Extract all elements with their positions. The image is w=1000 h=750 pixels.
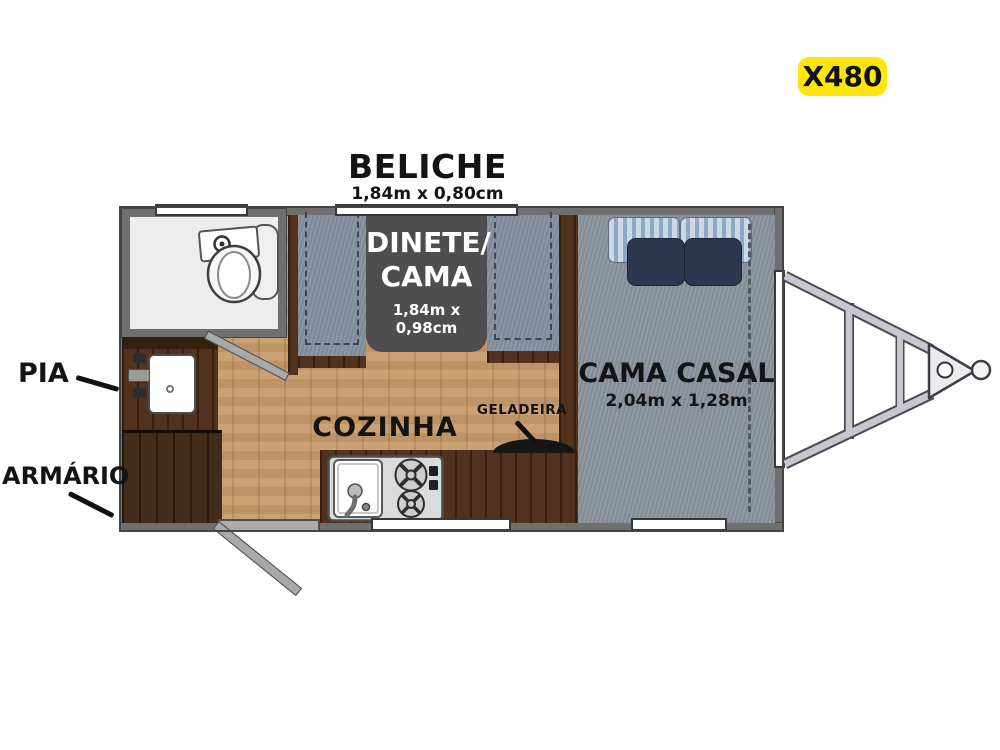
page-title: BELICHE bbox=[300, 147, 555, 186]
pillow-navy-left bbox=[627, 238, 685, 286]
cabinet-leader-line bbox=[68, 491, 115, 518]
faucet-icon bbox=[128, 369, 150, 382]
window-kitchen bbox=[371, 518, 511, 531]
burner-large-icon bbox=[396, 460, 427, 491]
dinette-bench-right-base bbox=[487, 351, 559, 363]
dinette-bench-right bbox=[487, 215, 559, 356]
bench-cushion-outline bbox=[305, 212, 359, 345]
double-bed-label: CAMA CASAL bbox=[578, 358, 775, 389]
page-title-dimensions: 1,84m x 0,80cm bbox=[300, 184, 555, 204]
cabinet-label: ARMÁRIO bbox=[2, 462, 129, 490]
faucet-knob-top bbox=[133, 353, 146, 363]
toilet-icon bbox=[194, 219, 286, 311]
bench-cushion-outline bbox=[494, 212, 552, 340]
dinette-side-panel-left bbox=[288, 215, 298, 375]
dinette-label-line2: CAMA bbox=[366, 260, 487, 294]
stove-sink-unit-icon bbox=[327, 455, 444, 522]
entry-door-threshold bbox=[218, 519, 320, 532]
hitch-coupler-ball bbox=[972, 361, 990, 379]
hitch-pin-hole bbox=[938, 363, 953, 378]
window-dinette bbox=[335, 204, 518, 216]
sink-leader-line bbox=[76, 375, 120, 391]
refrigerator-label: GELADEIRA bbox=[462, 402, 582, 418]
model-badge: X480 bbox=[798, 57, 887, 96]
dinette-bench-left-base bbox=[298, 356, 366, 368]
dinette-dimensions: 1,84m x 0,98cm bbox=[366, 301, 487, 337]
sink-basin-icon bbox=[148, 354, 196, 414]
dinette-table: DINETE/ CAMA 1,84m x 0,98cm bbox=[366, 215, 487, 352]
model-badge-label: X480 bbox=[802, 60, 882, 93]
pillow-navy-right bbox=[684, 238, 742, 286]
sink-drain-icon bbox=[166, 385, 174, 393]
faucet-knob-bottom bbox=[133, 388, 146, 398]
window-bathroom bbox=[155, 204, 248, 216]
dinette-bench-left bbox=[298, 215, 366, 361]
hitch-icon bbox=[780, 255, 995, 485]
dinette-label-line1: DINETE/ bbox=[366, 226, 487, 260]
burner-small-icon bbox=[398, 491, 424, 517]
double-bed-label-block: CAMA CASAL 2,04m x 1,28m bbox=[578, 358, 775, 411]
kitchen-label: COZINHA bbox=[290, 412, 480, 443]
cabinet-block bbox=[122, 430, 222, 523]
window-bed bbox=[631, 518, 727, 531]
entry-door-leaf bbox=[213, 521, 302, 596]
sink-label: PIA bbox=[18, 358, 69, 389]
double-bed-dimensions: 2,04m x 1,28m bbox=[578, 391, 775, 411]
